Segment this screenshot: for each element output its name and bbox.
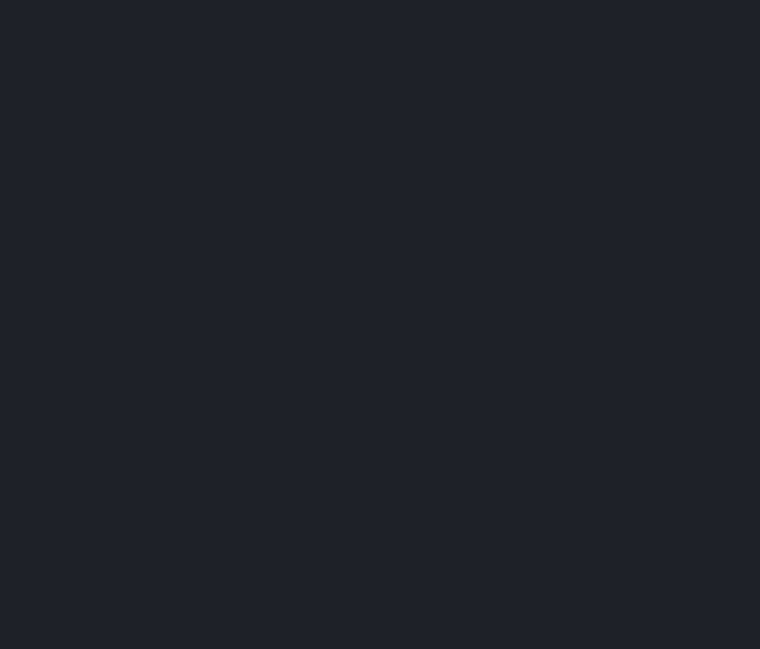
blank-dark-screen xyxy=(0,0,760,649)
